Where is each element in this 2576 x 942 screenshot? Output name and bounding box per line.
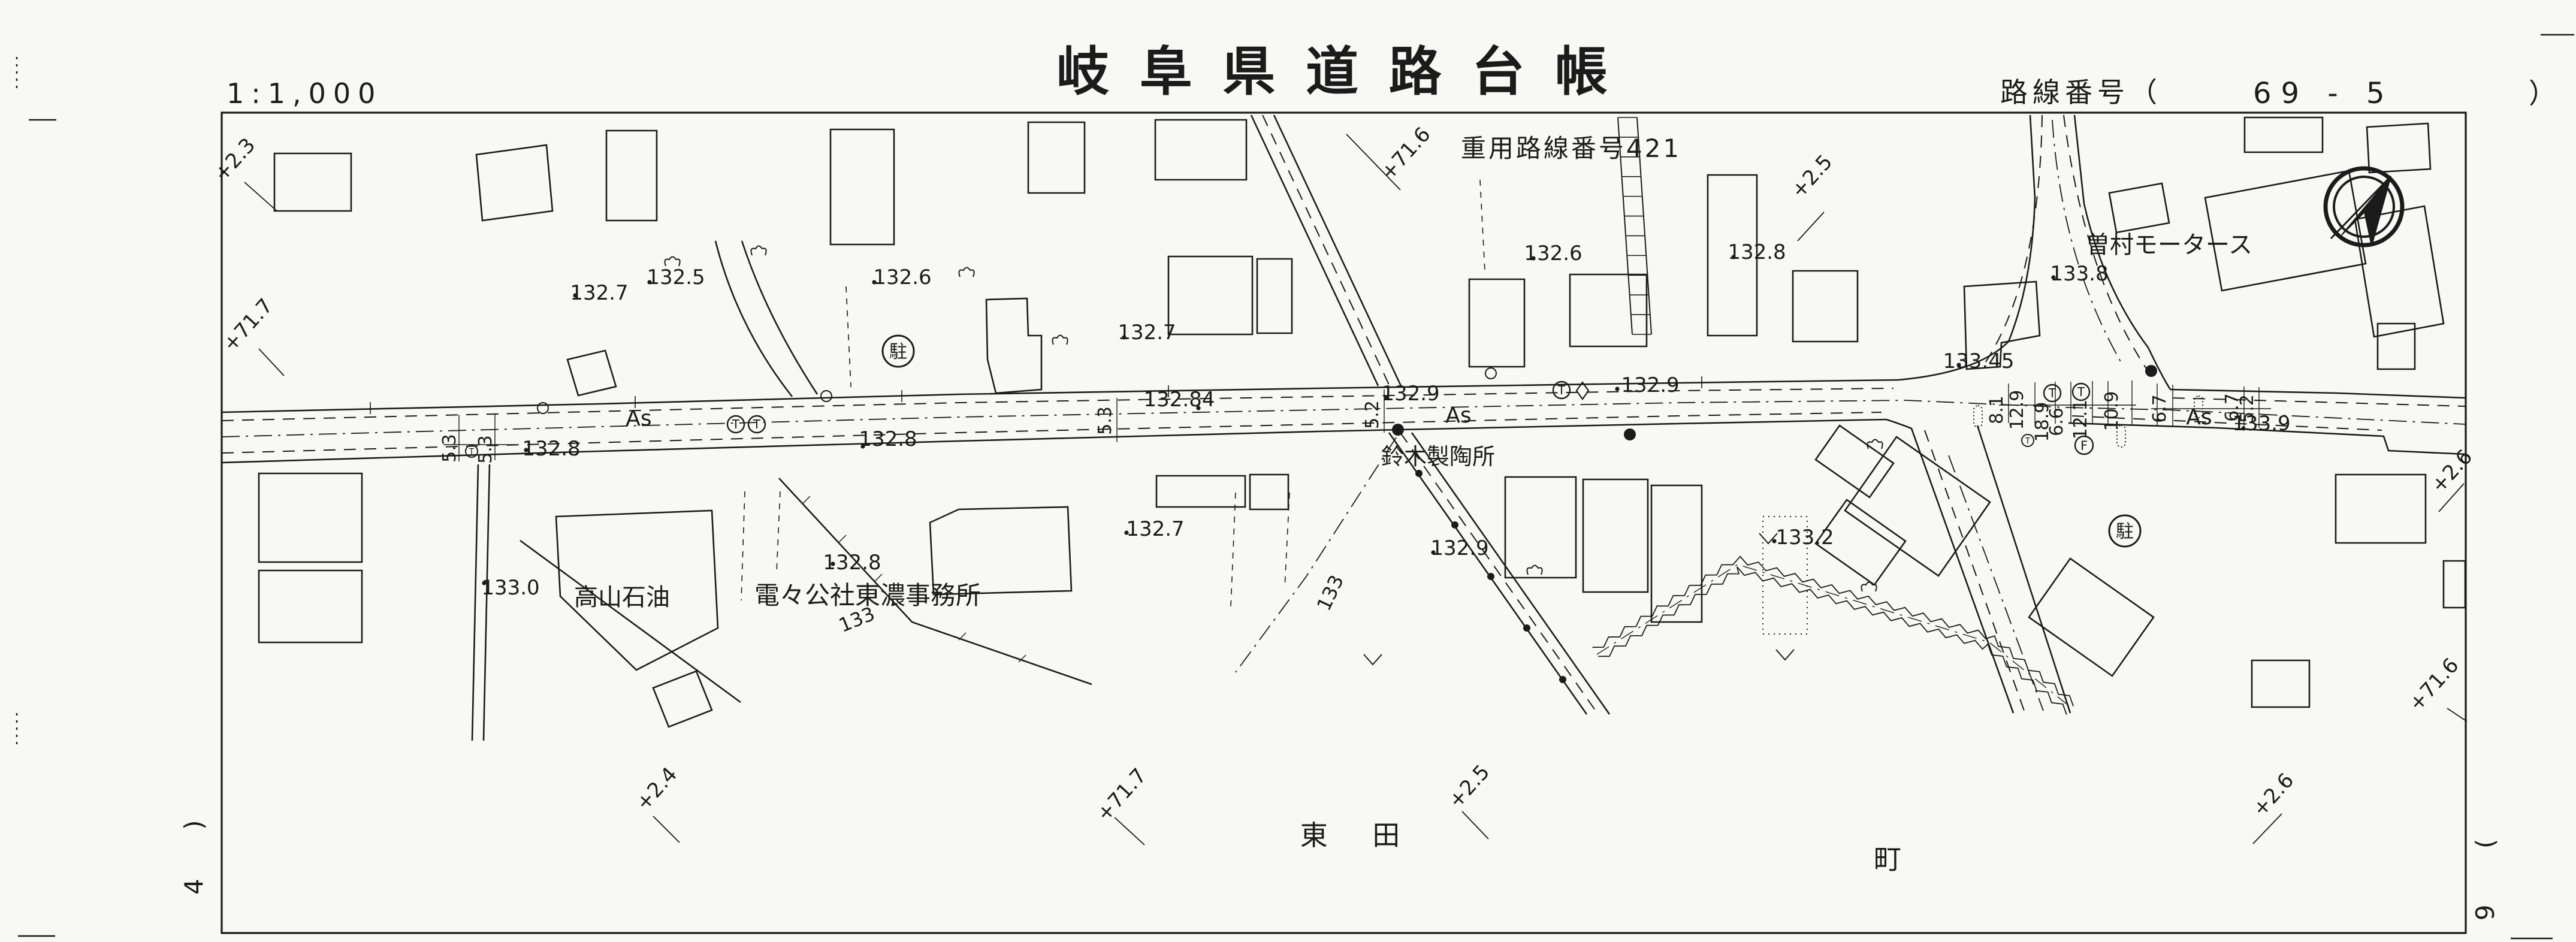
manhole-icon (537, 403, 548, 413)
width-dimension: 5.2 (2237, 394, 2258, 423)
road-network (222, 115, 2466, 741)
spot-elevation: 133.45 (1943, 349, 2015, 373)
width-dimension: 5.2 (1362, 400, 1383, 429)
stone-wall (1593, 557, 2074, 707)
building-outline (606, 131, 657, 221)
spot-elevation: 133.2 (1775, 526, 1834, 549)
road-edge (520, 541, 741, 702)
pole-dot-icon (1559, 676, 1566, 683)
width-dimension: 10.9 (2101, 391, 2122, 431)
building-outline (1845, 437, 1990, 576)
building-outline (259, 570, 362, 642)
svg-text:T: T (1557, 383, 1566, 397)
pole-dot-icon (1523, 624, 1530, 632)
telephone-pole-icon: T (2073, 384, 2089, 400)
tree-icon (959, 268, 974, 277)
road-edge (472, 464, 478, 741)
width-dimension: 12.9 (2007, 390, 2028, 430)
parcel-boundary (846, 286, 851, 387)
parking-icon: 駐 (889, 342, 907, 363)
building-outline (2252, 660, 2309, 707)
spot-elevation: 132.7 (570, 281, 628, 305)
building-outline (1257, 259, 1292, 333)
svg-text:T: T (2077, 385, 2085, 399)
building-outline (1505, 477, 1576, 578)
pole-dot-icon (1415, 470, 1423, 477)
road-center-line (1949, 455, 2043, 711)
road-shoulder-line (1925, 430, 2024, 711)
building-outline (1583, 479, 1648, 592)
north-arrow-icon (2326, 168, 2402, 246)
spot-elevation: 132.7 (1126, 517, 1184, 541)
building-outline (1816, 425, 1894, 497)
grid-coordinate: +2.4 (631, 763, 682, 816)
width-dimension: 5.3 (1095, 406, 1116, 435)
svg-text:T: T (469, 448, 474, 457)
wall-tick (803, 496, 810, 503)
tree-icon (665, 257, 680, 267)
grid-slash (2447, 708, 2467, 721)
crop-marks (17, 35, 2574, 938)
district-name: 東 田 (1300, 819, 1418, 852)
building-outline (1028, 122, 1085, 193)
road-edge (1251, 115, 1378, 386)
parcel-boundary (741, 491, 745, 600)
grid-coordinate: +2.5 (1443, 760, 1494, 813)
grid-slash (653, 816, 680, 843)
grid-slash (259, 349, 284, 376)
manhole-icon (821, 391, 832, 401)
road-edge (1412, 433, 1609, 714)
contour-elevation: 133 (1312, 572, 1348, 614)
width-dimension: 12.1 (2070, 400, 2091, 440)
road-shoulder-line (1263, 115, 1390, 386)
route-number-suffix: ） (2529, 77, 2556, 110)
building-outline (1250, 475, 1288, 509)
parking-symbol: 駐 (2109, 515, 2140, 547)
parcel-boundary (1480, 180, 1485, 271)
route-number-value: 69 - 5 (2253, 77, 2394, 110)
road-shoulder-line (1983, 115, 2042, 366)
building-outline (2109, 183, 2169, 233)
svg-text:T: T (2025, 437, 2030, 446)
grid-coordinate: +71.6 (1376, 123, 1435, 185)
building-outline (567, 351, 616, 395)
place-name: 鈴木製陶所 (1381, 443, 1495, 470)
spot-point (1615, 387, 1619, 391)
page-title: 岐 阜 県 道 路 台 帳 (1056, 41, 1614, 102)
road-shoulder-line (1400, 433, 1598, 714)
spot-elevation: 132.8 (1728, 240, 1786, 264)
building-outline (653, 671, 712, 727)
spot-elevation: 132.8 (823, 551, 881, 575)
place-name: 曽村モータース (2086, 231, 2252, 259)
parcel-boundary (1231, 493, 1236, 606)
map-canvas: 1:1,000 岐 阜 県 道 路 台 帳 路線番号（ 69 - 5 ） - 4… (0, 0, 2576, 942)
grid-slash (1115, 817, 1144, 845)
grid-slash (1462, 811, 1488, 839)
spot-elevation: 132.6 (1524, 241, 1582, 265)
road-shoulder-line (2173, 398, 2466, 406)
building-outline (259, 473, 362, 562)
building-outline (2205, 171, 2366, 291)
district-name: 町 (1874, 843, 1901, 875)
parking-symbol: 駐 (883, 336, 914, 367)
bus-stop-icon (1974, 406, 1982, 427)
building-outline (1793, 271, 1858, 342)
svg-text:T: T (732, 417, 740, 431)
road-elevation: 132.8 (859, 427, 917, 451)
place-name: 高山石油 (574, 584, 670, 611)
spot-elevation: 132.5 (647, 265, 705, 289)
map-details (1593, 557, 2074, 715)
pole-dot-icon (1451, 521, 1458, 529)
spot-elevation: 133.0 (481, 576, 539, 600)
stone-wall-center (1597, 564, 2072, 708)
building-outline (476, 145, 552, 221)
svg-text:T: T (2048, 386, 2056, 400)
building-outline (2444, 561, 2465, 608)
building-outline (986, 298, 1041, 393)
road-edge (2170, 390, 2466, 398)
road-edge (1274, 115, 1401, 386)
tree-icon (751, 246, 766, 256)
road-edge (1886, 419, 2013, 713)
grid-slash (1798, 212, 1824, 241)
building-outline (1168, 256, 1252, 334)
building-outline (274, 153, 351, 211)
spot-elevation: 132.9 (1430, 536, 1488, 560)
route-number-prefix: 路線番号（ (2000, 76, 2162, 108)
building-outline (1155, 120, 1246, 180)
road-center-line (1236, 437, 1396, 672)
grid-coordinate: +71.6 (2404, 654, 2463, 716)
road-edge (742, 241, 817, 394)
tree-icon (1861, 582, 1876, 592)
building-outline (1156, 476, 1245, 507)
road-elevation: 132.8 (522, 437, 580, 461)
parcel-boundary (777, 491, 780, 573)
road-edge (484, 464, 490, 741)
sheet-ref-left: - 4 ) (179, 800, 209, 942)
building-outline (1651, 485, 1702, 622)
building-outline (2336, 475, 2426, 543)
telephone-pole-icon: T (1553, 382, 1570, 398)
grid-slash (244, 182, 277, 211)
surface-type: As (2186, 405, 2212, 430)
grid-coordinate: +2.5 (1786, 150, 1837, 203)
width-dimension: 6.6 (2046, 407, 2067, 436)
vegetation-mark-icon (1364, 654, 1382, 665)
parking-icon: 駐 (2116, 521, 2134, 542)
overlap-route-label: 重用路線番号421 (1461, 134, 1681, 163)
road-edge (715, 241, 792, 397)
manhole-icon (1485, 368, 1496, 379)
spot-elevation: 133.8 (2050, 262, 2108, 286)
junction-node-icon (1624, 428, 1636, 440)
tree-icon (1052, 336, 1067, 345)
building-outline (1469, 279, 1524, 367)
building-outline (2245, 117, 2323, 152)
spot-elevation: 132.6 (873, 265, 931, 289)
building-outline (831, 129, 894, 244)
road-elevation: 132.9 (1381, 382, 1439, 406)
width-dimension: 6.7 (2149, 394, 2170, 423)
width-dimension: 5.3 (475, 435, 496, 464)
vegetation-mark-icon (1776, 650, 1794, 660)
grid-coordinate: +2.6 (2248, 769, 2299, 822)
road-ledger-sheet: 1:1,000 岐 阜 県 道 路 台 帳 路線番号（ 69 - 5 ） - 4… (0, 0, 2576, 942)
tree-icon (1527, 566, 1542, 575)
building-outline (1570, 274, 1647, 346)
width-dimension: 5.3 (439, 434, 460, 463)
surface-type: As (626, 406, 651, 431)
grid-coordinate: +2.3 (209, 134, 260, 186)
wall-tick (839, 535, 846, 542)
telephone-pole-icon: T (748, 416, 765, 433)
telephone-pole-icon: T (727, 416, 744, 433)
spot-elevation: 132.7 (1118, 321, 1176, 345)
sheet-ref-right: 9 ( (2471, 815, 2500, 920)
grid-coordinate: +71.7 (1092, 764, 1151, 826)
svg-text:F: F (2080, 439, 2088, 453)
road-elevation: 132.84 (1144, 388, 1215, 412)
surface-type: As (1445, 403, 1471, 428)
junction-node-icon (1392, 424, 1404, 436)
road-elevation: 132.9 (1621, 373, 1679, 397)
junction-node-icon (2145, 365, 2157, 377)
width-dimension: 8.1 (1986, 395, 2007, 424)
grid-coordinate: +71.7 (218, 294, 277, 357)
building-outline (2367, 123, 2430, 173)
telephone-pole-icon: T (2044, 385, 2061, 401)
building-outline (2029, 558, 2154, 676)
scale-label: 1:1,000 (227, 77, 382, 110)
svg-text:T: T (753, 417, 761, 431)
pole-dot-icon (1487, 573, 1494, 580)
